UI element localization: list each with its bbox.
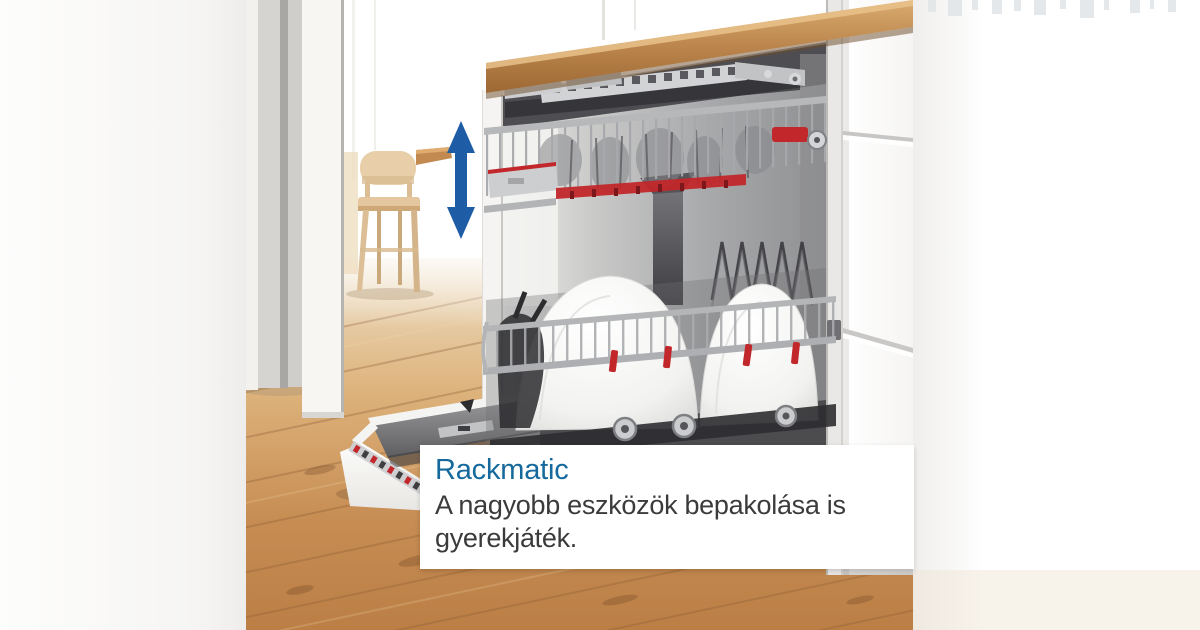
card-description-line2: gyerekjáték. xyxy=(435,522,904,555)
kitchen-scene: Rackmatic A nagyobb eszközök bepakolása … xyxy=(0,0,1200,630)
left-wall xyxy=(0,0,246,630)
rack-handle xyxy=(772,127,808,142)
window-mullion xyxy=(374,0,376,150)
card-description: A nagyobb eszközök bepakolása is gyerekj… xyxy=(435,489,904,555)
right-wash xyxy=(913,0,1200,630)
info-card: Rackmatic A nagyobb eszközök bepakolása … xyxy=(420,445,914,569)
card-description-line1: A nagyobb eszközök bepakolása is xyxy=(435,489,904,522)
door-frame xyxy=(242,0,344,418)
lower-rack xyxy=(483,268,836,460)
card-title: Rackmatic xyxy=(435,454,904,486)
open-door-leaf xyxy=(302,0,344,418)
